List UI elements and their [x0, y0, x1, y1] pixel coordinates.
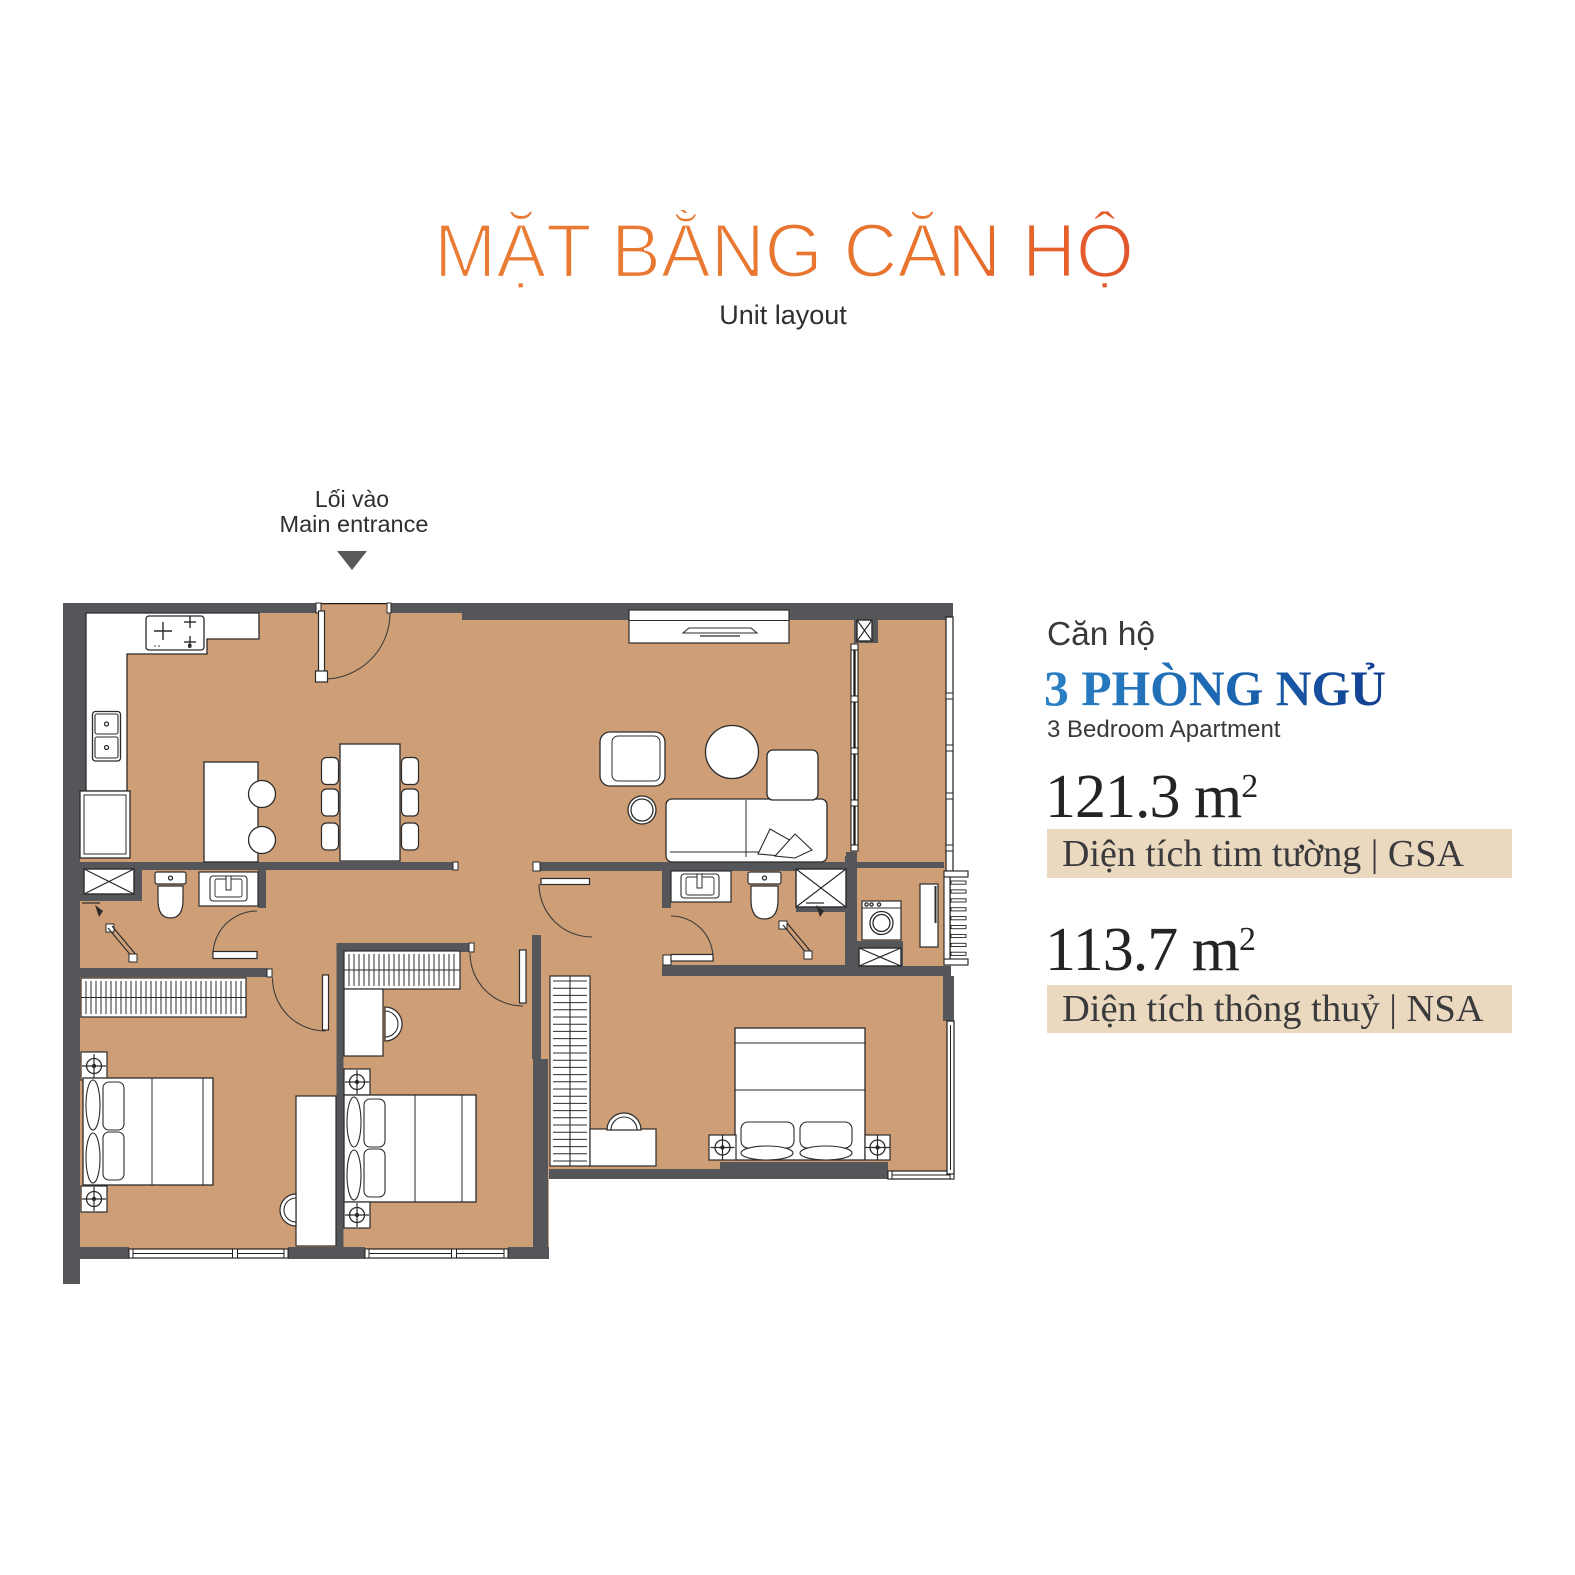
svg-text:3 PHÒNG NGỦ: 3 PHÒNG NGỦ [1044, 660, 1386, 716]
svg-text:Lối vào: Lối vào [315, 486, 389, 512]
svg-text:MẶT BẰNG CĂN HỘ: MẶT BẰNG CĂN HỘ [434, 209, 1134, 294]
svg-text:Diện tích thông thuỷ | NSA: Diện tích thông thuỷ | NSA [1062, 988, 1484, 1030]
svg-text:Main entrance: Main entrance [280, 511, 429, 537]
svg-text:113.7 m2: 113.7 m2 [1045, 916, 1255, 984]
svg-text:3 Bedroom Apartment: 3 Bedroom Apartment [1047, 716, 1281, 743]
svg-text:Unit layout: Unit layout [719, 300, 847, 330]
svg-text:Căn hộ: Căn hộ [1047, 615, 1155, 652]
svg-text:121.3 m2: 121.3 m2 [1045, 763, 1257, 831]
svg-text:Diện tích tim tường | GSA: Diện tích tim tường | GSA [1062, 833, 1464, 875]
